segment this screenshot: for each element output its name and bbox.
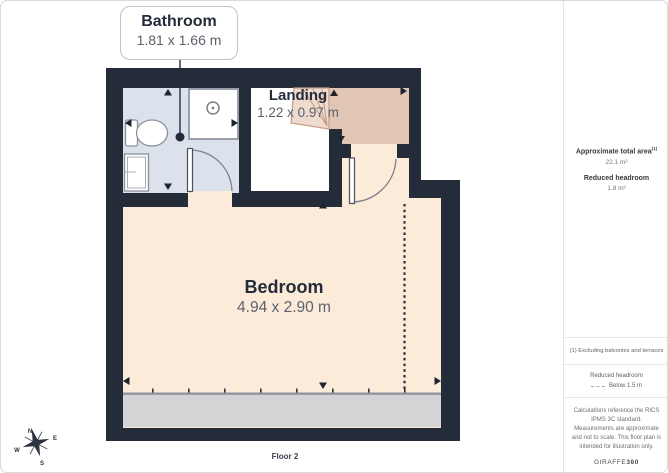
bathroom-title: Bathroom — [121, 12, 237, 31]
bathroom-callout: Bathroom 1.81 x 1.66 m — [120, 6, 238, 60]
landing-dims: 1.22 x 0.97 m — [257, 104, 339, 121]
legend-dashed-line-sample — [591, 386, 605, 387]
knee-wall-line — [123, 393, 441, 395]
reduced-headroom-band — [123, 395, 441, 427]
bathroom-dims: 1.81 x 1.66 m — [121, 31, 237, 49]
bedroom-dims: 4.94 x 2.90 m — [237, 298, 331, 318]
compass-w-label: W — [14, 448, 20, 454]
total-area-footnote-marker: (1) — [652, 146, 658, 151]
total-area-label: Approximate total area(1) — [576, 146, 657, 155]
stairs-area-floor-lower — [342, 129, 409, 144]
footnote: (1) Excluding balconies and terraces — [564, 337, 668, 364]
floorplan-page: N E S W Bathroom 1.81 x 1.66 m Landing 1… — [0, 0, 668, 473]
compass-e-label: E — [53, 436, 57, 442]
area-summary: Approximate total area(1) 22.1 m² Reduce… — [564, 1, 668, 337]
floor-label: Floor 2 — [272, 452, 299, 461]
giraffe360-logo: GIRAFFE360 — [594, 459, 639, 466]
floorplan-drawing: N E S W — [1, 1, 557, 473]
bedroom-title: Bedroom — [237, 277, 331, 298]
disclaimer-text: Calculations reference the RICS IPMS 3C … — [571, 407, 662, 452]
bedroom-label: Bedroom 4.94 x 2.90 m — [237, 277, 331, 318]
landing-title: Landing — [257, 87, 339, 104]
bathroom-door-threshold — [188, 191, 232, 207]
landing-label: Landing 1.22 x 0.97 m — [257, 87, 339, 121]
shower — [189, 89, 238, 139]
disclaimer-section: Calculations reference the RICS IPMS 3C … — [564, 397, 668, 473]
compass-s-label: S — [40, 461, 44, 467]
legend: Reduced headroom Below 1.5 m — [564, 364, 668, 397]
sink — [125, 154, 149, 191]
reduced-headroom-label: Reduced headroom — [584, 175, 649, 182]
total-area-value: 22.1 m² — [605, 159, 627, 166]
legend-item-label: Below 1.5 m — [609, 383, 642, 389]
bedroom-door-threshold — [351, 144, 397, 158]
callout-anchor-dot — [176, 133, 185, 142]
compass: N E S W — [14, 425, 57, 467]
toilet — [126, 120, 168, 146]
reduced-headroom-value: 1.8 m² — [607, 185, 625, 192]
info-sidebar: Approximate total area(1) 22.1 m² Reduce… — [563, 1, 668, 473]
stairs-area-floor — [329, 88, 409, 129]
legend-title: Reduced headroom — [590, 373, 643, 379]
compass-n-label: N — [28, 429, 32, 435]
